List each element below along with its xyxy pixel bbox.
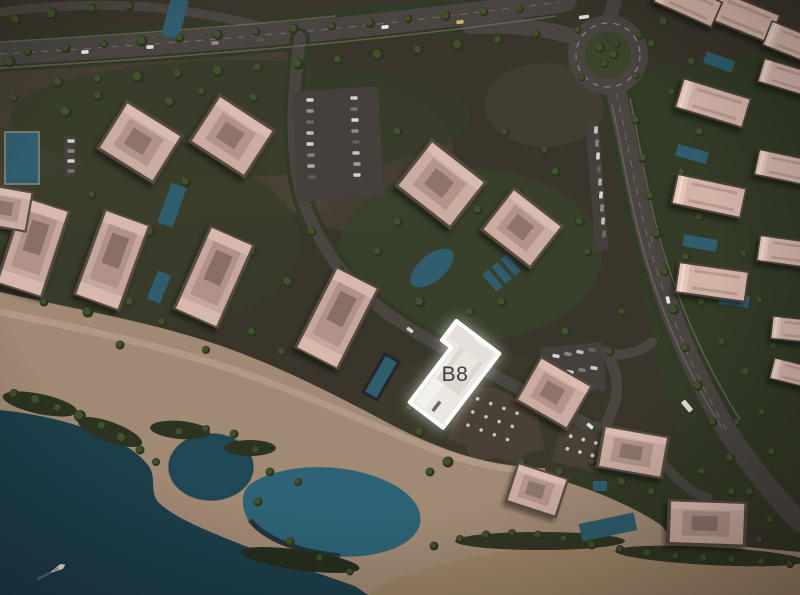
- vignette-overlay: [0, 0, 800, 595]
- masterplan-map: B8: [0, 0, 800, 595]
